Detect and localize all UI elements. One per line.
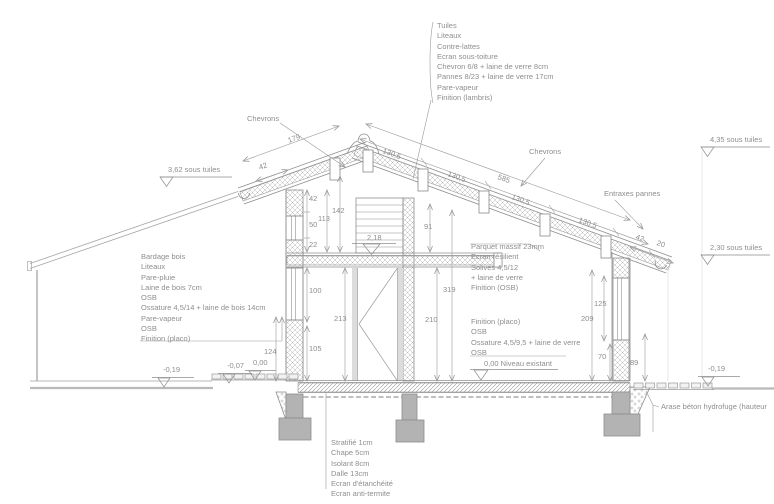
entraxes-pannes-label: Entraxes pannes bbox=[604, 189, 660, 198]
level-230: 2,30 sous tuiles bbox=[710, 243, 762, 252]
level-triangle-existing bbox=[474, 370, 488, 380]
level-000: 0,00 bbox=[253, 358, 268, 367]
wall-left bbox=[286, 190, 303, 381]
partition-layers-note: Finition (placo) OSB Ossature 4,5/9,5 + … bbox=[471, 317, 580, 358]
door-swing bbox=[359, 268, 398, 324]
note-line: Pare-vapeur bbox=[437, 83, 554, 93]
note-line: Pannes 8/23 + laine de verre 17cm bbox=[437, 72, 554, 82]
note-line: Isolant 8cm bbox=[331, 459, 393, 469]
door bbox=[352, 268, 403, 381]
dim-h50: 50 bbox=[309, 220, 317, 229]
note-line: Tuiles bbox=[437, 21, 554, 31]
level-existing: 0,00 Niveau existant bbox=[484, 359, 552, 368]
mezzanine-floor-layers-note: Parquet massif 23mm Ecran résilient Soli… bbox=[471, 242, 544, 293]
note-line: Parquet massif 23mm bbox=[471, 242, 544, 252]
note-line: OSB bbox=[141, 324, 265, 334]
level-minus019-right: -0,19 bbox=[708, 364, 725, 373]
partition-wall bbox=[356, 198, 414, 381]
window-right bbox=[613, 278, 629, 340]
window-upper-left bbox=[286, 216, 303, 240]
dim-h89: 89 bbox=[630, 358, 638, 367]
note-line: Finition (placo) bbox=[141, 334, 265, 344]
level-triangle-minus019-left bbox=[158, 378, 170, 387]
dim-h105: 105 bbox=[309, 344, 322, 353]
note-line: Ossature 4,5/9,5 + laine de verre bbox=[471, 338, 580, 348]
level-minus019-left: -0,19 bbox=[163, 365, 180, 374]
level-minus007: -0,07 bbox=[227, 361, 244, 370]
dim-h22: 22 bbox=[309, 240, 317, 249]
floor-slab bbox=[296, 381, 632, 398]
note-line: Stratifié 1cm bbox=[331, 438, 393, 448]
level-triangle-435 bbox=[701, 147, 714, 157]
note-line: Contre-lattes bbox=[437, 42, 554, 52]
dim-h100: 100 bbox=[309, 286, 322, 295]
dim-h91: 91 bbox=[424, 222, 432, 231]
level-triangle-230 bbox=[701, 255, 714, 265]
foundations bbox=[276, 387, 650, 442]
wall-left-layers-note: Bardage bois Liteaux Pare-pluie Laine de… bbox=[141, 252, 265, 345]
note-line: Chevron 6/8 + laine de verre 8cm bbox=[437, 62, 554, 72]
note-line: OSB bbox=[471, 327, 580, 337]
wall-right bbox=[612, 252, 630, 381]
arase-note: Arase béton hydrofuge (hauteur bbox=[661, 402, 767, 411]
note-line: + laine de verre bbox=[471, 273, 544, 283]
note-line: Ecran anti-termite bbox=[331, 489, 393, 499]
note-line: Chape 5cm bbox=[331, 448, 393, 458]
note-line: Laine de bois 7cm bbox=[141, 283, 265, 293]
level-218: 2,18 bbox=[367, 233, 382, 242]
note-line: OSB bbox=[141, 293, 265, 303]
level-362: 3,62 sous tuiles bbox=[168, 165, 220, 174]
note-line: Pare-vapeur bbox=[141, 314, 265, 324]
chevrons-left-label: Chevrons bbox=[247, 114, 279, 123]
dim-h210: 210 bbox=[425, 315, 438, 324]
note-line: Finition (OSB) bbox=[471, 283, 544, 293]
level-triangle-362 bbox=[160, 177, 173, 187]
level-435: 4,35 sous tuiles bbox=[710, 135, 762, 144]
note-line: Liteaux bbox=[437, 31, 554, 41]
slab-layers-note: Stratifié 1cm Chape 5cm Isolant 8cm Dall… bbox=[331, 438, 393, 500]
note-line: Liteaux bbox=[141, 262, 265, 272]
note-line: Pare-pluie bbox=[141, 273, 265, 283]
roof-layers-note: Tuiles Liteaux Contre-lattes Ecran sous-… bbox=[437, 21, 554, 103]
note-line: OSB bbox=[471, 348, 580, 358]
note-line: Ossature 4,5/14 + laine de bois 14cm bbox=[141, 303, 265, 313]
guide-lines bbox=[668, 152, 702, 381]
dim-h142: 142 bbox=[332, 206, 345, 215]
window-lower-left bbox=[286, 268, 303, 320]
section-linework bbox=[0, 0, 774, 504]
dim-h113: 113 bbox=[318, 214, 330, 223]
note-line: Ecran d'étanchéité bbox=[331, 479, 393, 489]
note-line: Solives 4,5/12 bbox=[471, 263, 544, 273]
dim-h319: 319 bbox=[443, 285, 456, 294]
mezzanine-floor bbox=[287, 253, 502, 267]
note-line: Finition (placo) bbox=[471, 317, 580, 327]
note-line: Ecran résilient bbox=[471, 252, 544, 262]
note-line: Dalle 13cm bbox=[331, 469, 393, 479]
dim-h124: 124 bbox=[264, 347, 277, 356]
dim-h209: 209 bbox=[581, 314, 594, 323]
chevrons-right-label: Chevrons bbox=[529, 147, 561, 156]
note-line: Finition (lambris) bbox=[437, 93, 554, 103]
dim-h70: 70 bbox=[598, 352, 606, 361]
architectural-section-drawing: Tuiles Liteaux Contre-lattes Ecran sous-… bbox=[0, 0, 774, 504]
note-line: Bardage bois bbox=[141, 252, 265, 262]
dim-h213: 213 bbox=[334, 314, 347, 323]
note-line: Ecran sous-toiture bbox=[437, 52, 554, 62]
dim-h125: 125 bbox=[594, 299, 607, 308]
dim-h42: 42 bbox=[309, 194, 317, 203]
